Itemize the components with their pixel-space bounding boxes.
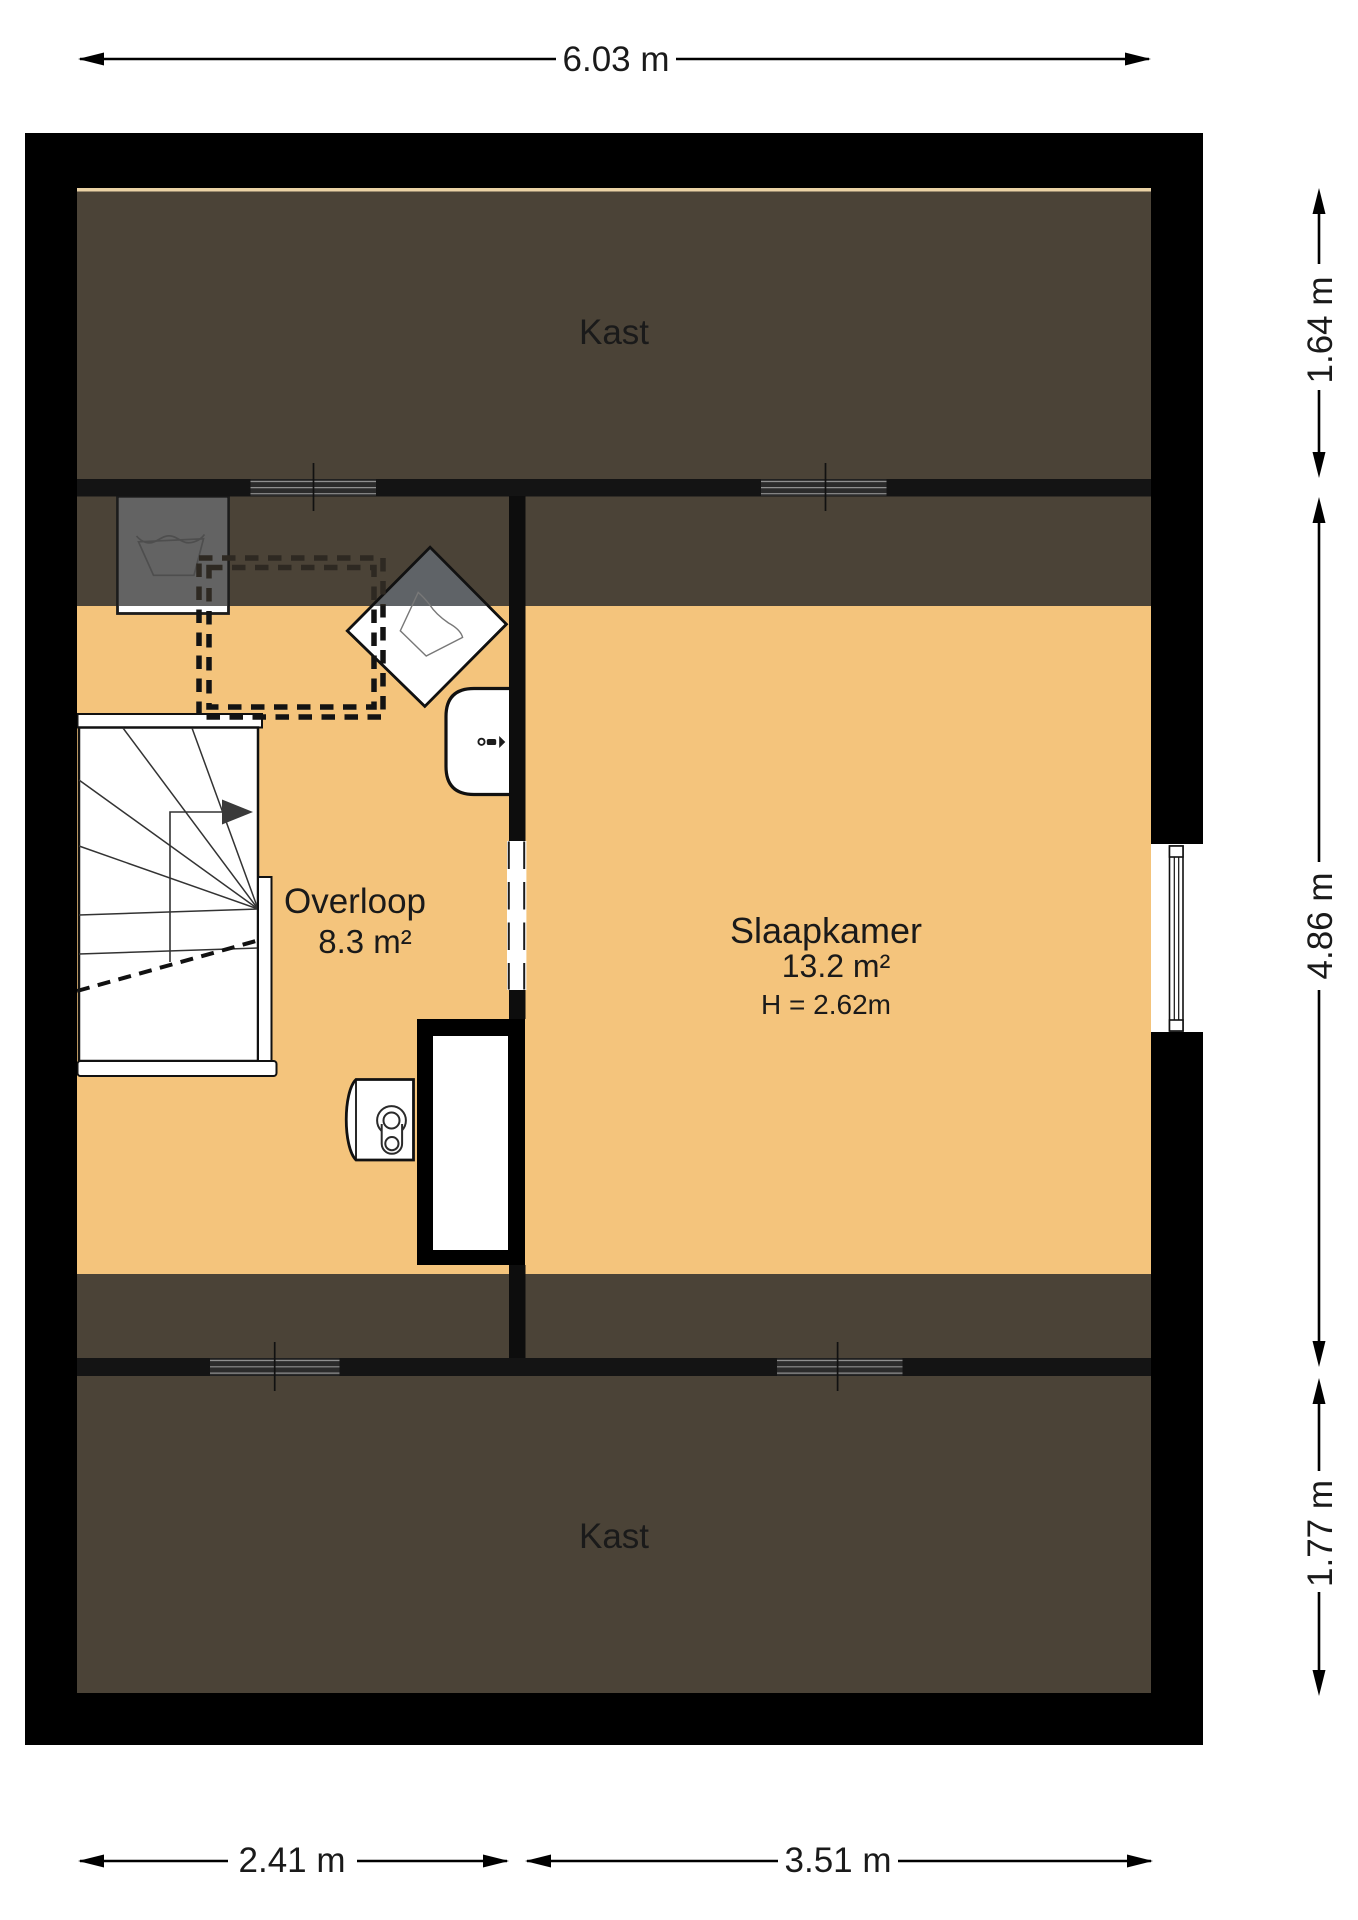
svg-text:13.2 m²: 13.2 m² <box>782 948 891 984</box>
svg-text:2.41 m: 2.41 m <box>239 1841 346 1880</box>
svg-text:Overloop: Overloop <box>284 882 426 921</box>
svg-text:Kast: Kast <box>579 313 649 352</box>
svg-text:3.51 m: 3.51 m <box>785 1841 892 1880</box>
svg-text:H = 2.62m: H = 2.62m <box>761 989 891 1020</box>
svg-text:1.64 m: 1.64 m <box>1301 277 1340 384</box>
svg-text:6.03 m: 6.03 m <box>563 40 670 79</box>
svg-text:1.77 m: 1.77 m <box>1301 1480 1340 1587</box>
svg-text:Kast: Kast <box>579 1517 649 1556</box>
svg-text:8.3 m²: 8.3 m² <box>318 923 412 960</box>
svg-text:4.86 m: 4.86 m <box>1301 873 1340 980</box>
svg-text:Slaapkamer: Slaapkamer <box>730 910 922 951</box>
